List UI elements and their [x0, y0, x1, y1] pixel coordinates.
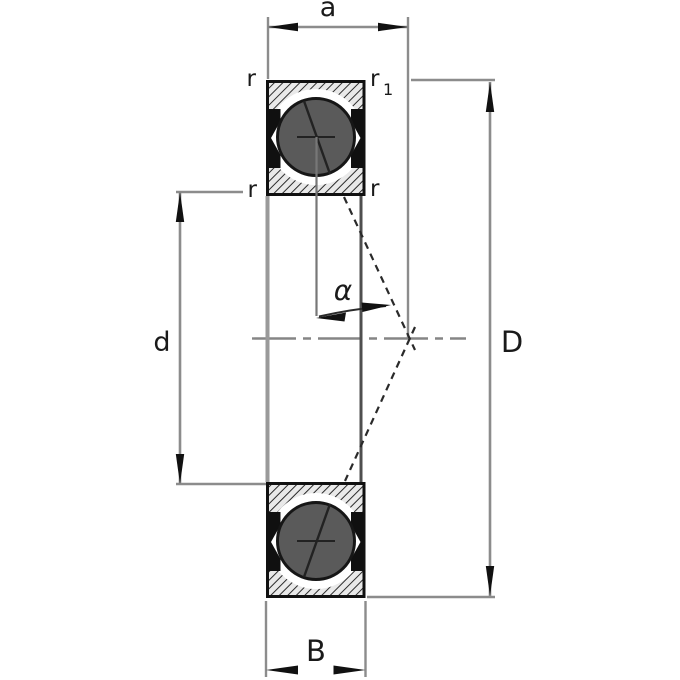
label-chamfer-mid-right: r: [370, 176, 380, 202]
bottom-bearing-section: [266, 482, 366, 598]
label-dim-d: d: [153, 327, 170, 358]
dim-a-arrow-right: [378, 23, 408, 31]
label-dim-B: B: [306, 634, 326, 668]
label-chamfer-top-right-subscript: 1: [383, 80, 393, 99]
alpha-arrow-right: [362, 303, 392, 313]
dim-d-arrow-top: [176, 192, 184, 222]
bearing-diagram: a D d B: [0, 0, 680, 680]
dim-D-arrow-top: [486, 82, 494, 112]
dim-d-arrow-bottom: [176, 454, 184, 484]
dim-D-arrow-bottom: [486, 566, 494, 596]
label-chamfer-top-right: r: [370, 66, 380, 92]
contact-angle-line-bottom: [345, 327, 415, 481]
label-contact-angle: α: [334, 274, 353, 307]
dim-a-arrow-left: [268, 23, 298, 31]
label-chamfer-top-left: r: [247, 66, 257, 92]
dimension-B: B: [266, 601, 366, 677]
label-dim-D: D: [501, 325, 523, 359]
dim-B-arrow-right: [334, 666, 366, 675]
label-dim-a: a: [320, 0, 337, 23]
dim-B-arrow-left: [266, 666, 298, 675]
label-chamfer-mid-left: r: [248, 177, 258, 203]
contact-angle-line-top: [344, 197, 415, 350]
dimension-d: d: [153, 192, 266, 484]
bearing-diagram-canvas: a D d B: [0, 0, 680, 680]
